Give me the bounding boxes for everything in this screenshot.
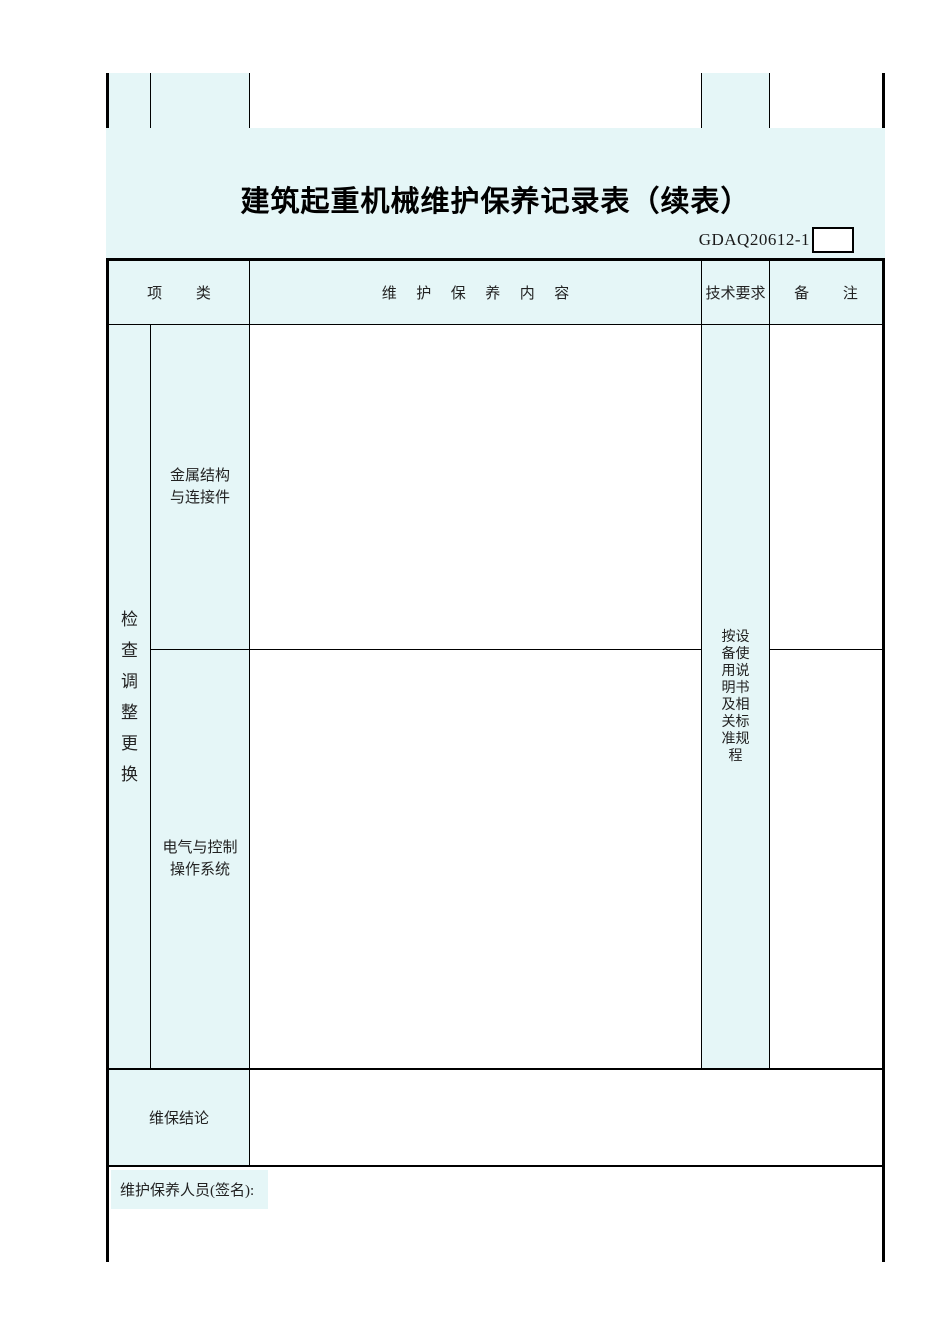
form-code-box[interactable] — [812, 227, 854, 253]
title-band: 建筑起重机械维护保养记录表（续表） GDAQ20612-1 — [106, 128, 885, 258]
header-tech-requirements: 技术要求 — [702, 261, 770, 325]
conclusion-value-cell[interactable] — [250, 1070, 882, 1167]
signature-label: 维护保养人员(签名): — [111, 1170, 268, 1209]
fragment-cell-group — [109, 73, 151, 128]
fragment-cell-category — [151, 73, 250, 128]
form-code: GDAQ20612-1 — [699, 230, 810, 250]
header-remarks: 备 注 — [770, 261, 882, 325]
fragment-cell-remark[interactable] — [770, 73, 882, 128]
category-cell-metal-structure: 金属结构与连接件 — [151, 325, 250, 650]
fragment-cell-content[interactable] — [250, 73, 702, 128]
remark-cell-row2[interactable] — [770, 650, 882, 1070]
content-cell-row2[interactable] — [250, 650, 702, 1070]
conclusion-label-cell: 维保结论 — [109, 1070, 250, 1167]
page: 建筑起重机械维护保养记录表（续表） GDAQ20612-1 项 类 维 护 保 … — [0, 0, 950, 1344]
header-maintenance-content: 维 护 保 养 内 容 — [250, 261, 702, 325]
fragment-cell-tech — [702, 73, 770, 128]
form-code-line: GDAQ20612-1 — [699, 227, 854, 253]
content-cell-row1[interactable] — [250, 325, 702, 650]
header-item-category: 项 类 — [109, 261, 250, 325]
tech-requirement-cell: 按设备使用说明书及相关标准规程 — [702, 325, 770, 1070]
group-label: 检查调整更换 — [120, 604, 139, 790]
maintenance-record-table: 项 类 维 护 保 养 内 容 技术要求 备 注 检查调整更换 金属结构与连接件… — [106, 258, 885, 1262]
tech-requirement-text: 按设备使用说明书及相关标准规程 — [721, 629, 751, 765]
group-label-cell: 检查调整更换 — [109, 325, 151, 1070]
category-cell-electrical-control: 电气与控制操作系统 — [151, 650, 250, 1070]
category-label-metal-structure: 金属结构与连接件 — [169, 465, 231, 509]
remark-cell-row1[interactable] — [770, 325, 882, 650]
signature-row-cell[interactable]: 维护保养人员(签名): — [109, 1167, 882, 1262]
page-title: 建筑起重机械维护保养记录表（续表） — [106, 128, 885, 220]
category-label-electrical-control: 电气与控制操作系统 — [162, 837, 239, 881]
previous-page-table-fragment — [106, 73, 885, 131]
